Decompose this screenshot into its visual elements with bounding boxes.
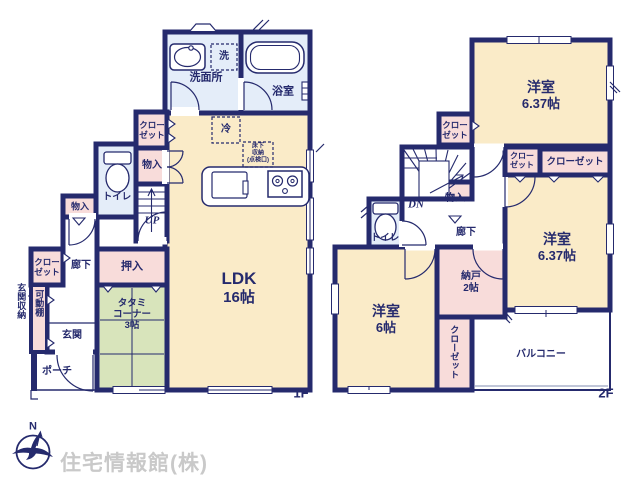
label-room-c: 洋室 6帖 <box>372 303 400 335</box>
label-washer: 洗 <box>219 51 229 63</box>
label-storage-1f-b: 物入 <box>71 202 89 213</box>
label-closet-2f-e: クローゼット <box>546 156 603 167</box>
floor2-tag: 2F <box>598 385 613 400</box>
label-closet-1f-b: クロー ゼット <box>34 257 60 277</box>
label-room-a: 洋室 6.37帖 <box>522 79 560 111</box>
label-closet-1f-a: クロー ゼット <box>139 120 165 140</box>
label-storage-room: 納戸 2帖 <box>461 271 481 295</box>
label-balcony: バルコニー <box>516 349 566 361</box>
label-stairs-up: UP <box>145 215 160 228</box>
floorplan-canvas: 洗面所 洗 浴室 冷 床下 収納 (点検口) クロー ゼット 物入 トイレ 物入… <box>0 0 640 480</box>
compass-bird <box>12 436 53 460</box>
label-closet-2f-f: クローゼット <box>449 325 460 379</box>
label-storage-1f-a: 物入 <box>142 160 162 172</box>
label-tatami-corner: タタミ コーナー 3帖 <box>113 298 151 332</box>
label-entrance-storage: 玄関収納 <box>16 283 27 319</box>
label-toilet-1f: トイレ <box>103 191 132 202</box>
sink-icon <box>170 44 205 70</box>
label-closet-2f-d: クロー ゼット <box>510 152 534 171</box>
label-stairs-down: DN <box>408 199 424 212</box>
label-porch: ポーチ <box>42 366 72 378</box>
label-washroom: 洗面所 <box>190 72 223 85</box>
compass-north-label: N <box>29 421 37 434</box>
label-room-b: 洋室 6.37帖 <box>538 231 576 263</box>
label-oshiire: 押入 <box>121 261 143 274</box>
floor2-rooms <box>335 40 610 390</box>
label-movable-shelf: 可動棚 <box>34 290 45 317</box>
label-hallway-2f: 廊下 <box>456 227 476 239</box>
label-storage-2f: 物入 <box>445 193 465 205</box>
label-toilet-2f: トイレ <box>371 232 400 243</box>
label-bath: 浴室 <box>272 86 294 99</box>
label-ldk: LDK 16帖 <box>222 269 257 307</box>
company-logo-text: 住宅情報館(株) <box>60 447 208 477</box>
label-entrance: 玄関 <box>62 330 82 342</box>
label-underfloor-storage: 床下 収納 (点検口) <box>247 143 269 164</box>
label-hallway-1f: 廊下 <box>71 260 91 272</box>
label-closet-2f-c: クロー ゼット <box>442 120 468 140</box>
compass-icon <box>12 431 53 469</box>
floor1-tag: 1F <box>293 385 308 400</box>
toilet-icon-1f <box>104 152 131 192</box>
label-fridge: 冷 <box>221 124 231 136</box>
kitchen-counter-icon <box>202 167 309 206</box>
